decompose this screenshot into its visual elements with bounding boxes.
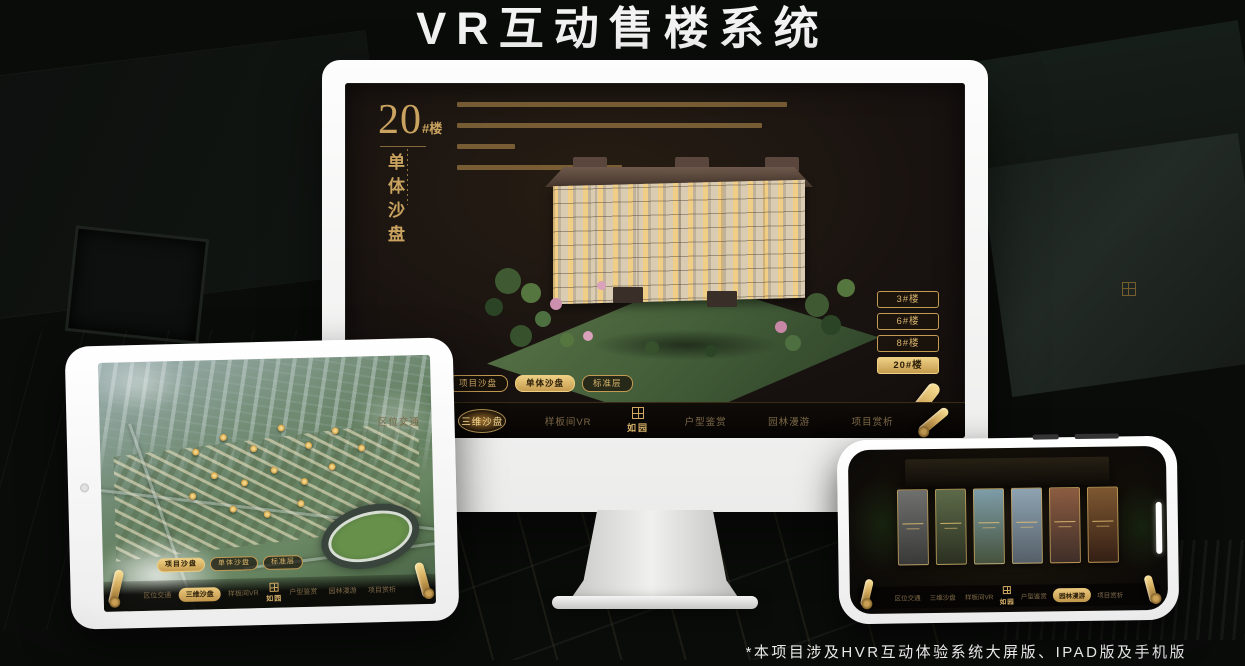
page-title: VR互动售楼系统 — [0, 0, 1245, 58]
panorama-card[interactable] — [935, 489, 967, 565]
panorama-card[interactable] — [897, 489, 929, 565]
nav-item-garden-tour[interactable]: 园林漫游 — [324, 584, 360, 599]
entrance-porch — [613, 287, 643, 303]
logo-text: 如园 — [266, 593, 282, 603]
panorama-card-row — [897, 486, 1119, 565]
card-label-line — [906, 528, 919, 529]
nav-item-showroom-vr[interactable]: 样板间VR — [539, 411, 598, 431]
tab-single-sandbox[interactable]: 单体沙盘 — [210, 556, 258, 571]
card-label-line — [1058, 526, 1071, 527]
nav-item-garden-tour[interactable]: 园林漫游 — [1053, 588, 1091, 603]
tab-project-sandbox[interactable]: 项目沙盘 — [448, 375, 508, 392]
nav-item-floorplans[interactable]: 户型鉴赏 — [1018, 588, 1050, 602]
floor-button-8[interactable]: 8#楼 — [877, 335, 939, 352]
entrance-porch — [707, 291, 737, 307]
tab-project-sandbox[interactable]: 项目沙盘 — [157, 557, 205, 572]
tablet-camera-icon — [80, 483, 89, 492]
nav-item-floorplans[interactable]: 户型鉴赏 — [679, 411, 733, 431]
nav-item-garden-tour[interactable]: 园林漫游 — [762, 411, 816, 431]
card-label-line — [1096, 526, 1109, 527]
card-label-line — [1020, 527, 1033, 528]
card-label-line — [902, 523, 923, 524]
ruyuan-logo[interactable]: 如园 — [627, 407, 649, 434]
building-facade — [553, 180, 805, 305]
tablet-device: 项目沙盘 单体沙盘 标准层 区位交通 三维沙盘 样板间VR 如园 户型鉴赏 园林… — [65, 337, 460, 629]
block-vertical-title: 单体沙盘 — [382, 153, 407, 249]
tree — [560, 333, 574, 347]
block-number: 20 — [378, 97, 422, 143]
nav-item-showroom-vr[interactable]: 样板间VR — [224, 586, 263, 601]
tree — [535, 311, 551, 327]
monitor-base — [552, 596, 758, 609]
bg-plaque — [65, 225, 209, 344]
scroll-icon[interactable] — [917, 405, 950, 435]
paragraph-line — [457, 144, 515, 149]
tab-standard-floor[interactable]: 标准层 — [582, 375, 633, 392]
tree — [521, 283, 541, 303]
title-vertical-ornament — [407, 149, 408, 205]
floor-button-20[interactable]: 20#楼 — [877, 357, 939, 374]
nav-item-location[interactable]: 区位交通 — [891, 590, 923, 604]
phone-bottom-nav: 区位交通 三维沙盘 样板间VR 如园 户型鉴赏 园林漫游 项目赏析 — [858, 583, 1160, 609]
tree — [510, 325, 532, 347]
tablet-sub-tabs: 项目沙盘 单体沙盘 标准层 — [157, 555, 303, 573]
flower-shrub — [775, 321, 787, 333]
nav-item-project-gallery[interactable]: 项目赏析 — [1094, 587, 1126, 601]
tablet-screen: 项目沙盘 单体沙盘 标准层 区位交通 三维沙盘 样板间VR 如园 户型鉴赏 园林… — [98, 355, 436, 612]
flower-shrub — [583, 331, 593, 341]
card-label-line — [982, 527, 995, 528]
nav-item-showroom-vr[interactable]: 样板间VR — [962, 589, 997, 603]
panorama-card[interactable] — [973, 488, 1005, 564]
poster: VR互动售楼系统 20#楼 单体沙盘 — [0, 0, 1245, 666]
screen-title-block: 20#楼 单体沙盘 — [378, 99, 442, 249]
panorama-card[interactable] — [1087, 486, 1119, 562]
seal-icon — [269, 582, 278, 591]
seal-icon — [632, 407, 644, 419]
tab-single-sandbox[interactable]: 单体沙盘 — [515, 375, 575, 392]
nav-item-3d-sandbox[interactable]: 三维沙盘 — [927, 590, 959, 604]
floor-button-6[interactable]: 6#楼 — [877, 313, 939, 330]
floor-button-group: 3#楼 6#楼 8#楼 20#楼 — [877, 291, 939, 374]
tab-standard-floor[interactable]: 标准层 — [263, 555, 303, 570]
card-label-line — [940, 523, 961, 524]
nav-item-3d-sandbox[interactable]: 三维沙盘 — [455, 411, 509, 431]
panorama-card[interactable] — [1049, 487, 1081, 563]
tree — [805, 293, 829, 317]
bg-logo-icon — [1122, 282, 1136, 296]
ruyuan-logo[interactable]: 如园 — [1000, 586, 1015, 606]
card-label-line — [944, 528, 957, 529]
card-label-line — [1092, 521, 1113, 522]
monitor-sub-tabs: 项目沙盘 单体沙盘 标准层 — [448, 375, 633, 392]
flower-shrub — [597, 281, 606, 290]
tree — [495, 268, 521, 294]
nav-item-location[interactable]: 区位交通 — [139, 588, 175, 603]
tree — [821, 315, 841, 335]
tree — [785, 335, 801, 351]
monitor-stand — [570, 510, 740, 600]
title-rule — [380, 146, 426, 147]
tree — [705, 345, 717, 357]
phone-power-button — [1075, 433, 1119, 439]
nav-item-floorplans[interactable]: 户型鉴赏 — [285, 585, 321, 600]
tree — [837, 279, 855, 297]
footnote: *本项目涉及HVR互动体验系统大屏版、IPAD版及手机版 — [746, 641, 1187, 662]
paragraph-line — [457, 102, 787, 107]
flower-shrub — [550, 298, 562, 310]
nav-item-location[interactable]: 区位交通 — [372, 411, 426, 431]
phone-volume-button — [1033, 434, 1059, 439]
card-label-line — [1054, 521, 1075, 522]
card-label-line — [1016, 522, 1037, 523]
seal-icon — [1003, 586, 1011, 594]
tree — [485, 298, 503, 316]
phone-device: 区位交通 三维沙盘 样板间VR 如园 户型鉴赏 园林漫游 项目赏析 — [837, 436, 1180, 625]
ruyuan-logo[interactable]: 如园 — [266, 582, 283, 603]
nav-item-3d-sandbox[interactable]: 三维沙盘 — [178, 587, 220, 602]
floor-button-3[interactable]: 3#楼 — [877, 291, 939, 308]
block-suffix: #楼 — [422, 121, 442, 136]
panorama-gate — [905, 456, 1109, 487]
bg-collage-river — [980, 133, 1245, 397]
panorama-card[interactable] — [1011, 488, 1043, 564]
card-label-line — [978, 522, 999, 523]
home-indicator[interactable] — [1156, 502, 1163, 554]
tree — [645, 341, 659, 355]
paragraph-line — [457, 123, 762, 128]
logo-text: 如园 — [627, 421, 649, 434]
logo-text: 如园 — [1000, 596, 1015, 606]
nav-item-project-gallery[interactable]: 项目赏析 — [364, 583, 400, 598]
phone-screen: 区位交通 三维沙盘 样板间VR 如园 户型鉴赏 园林漫游 项目赏析 — [848, 446, 1168, 614]
nav-item-project-gallery[interactable]: 项目赏析 — [846, 411, 900, 431]
